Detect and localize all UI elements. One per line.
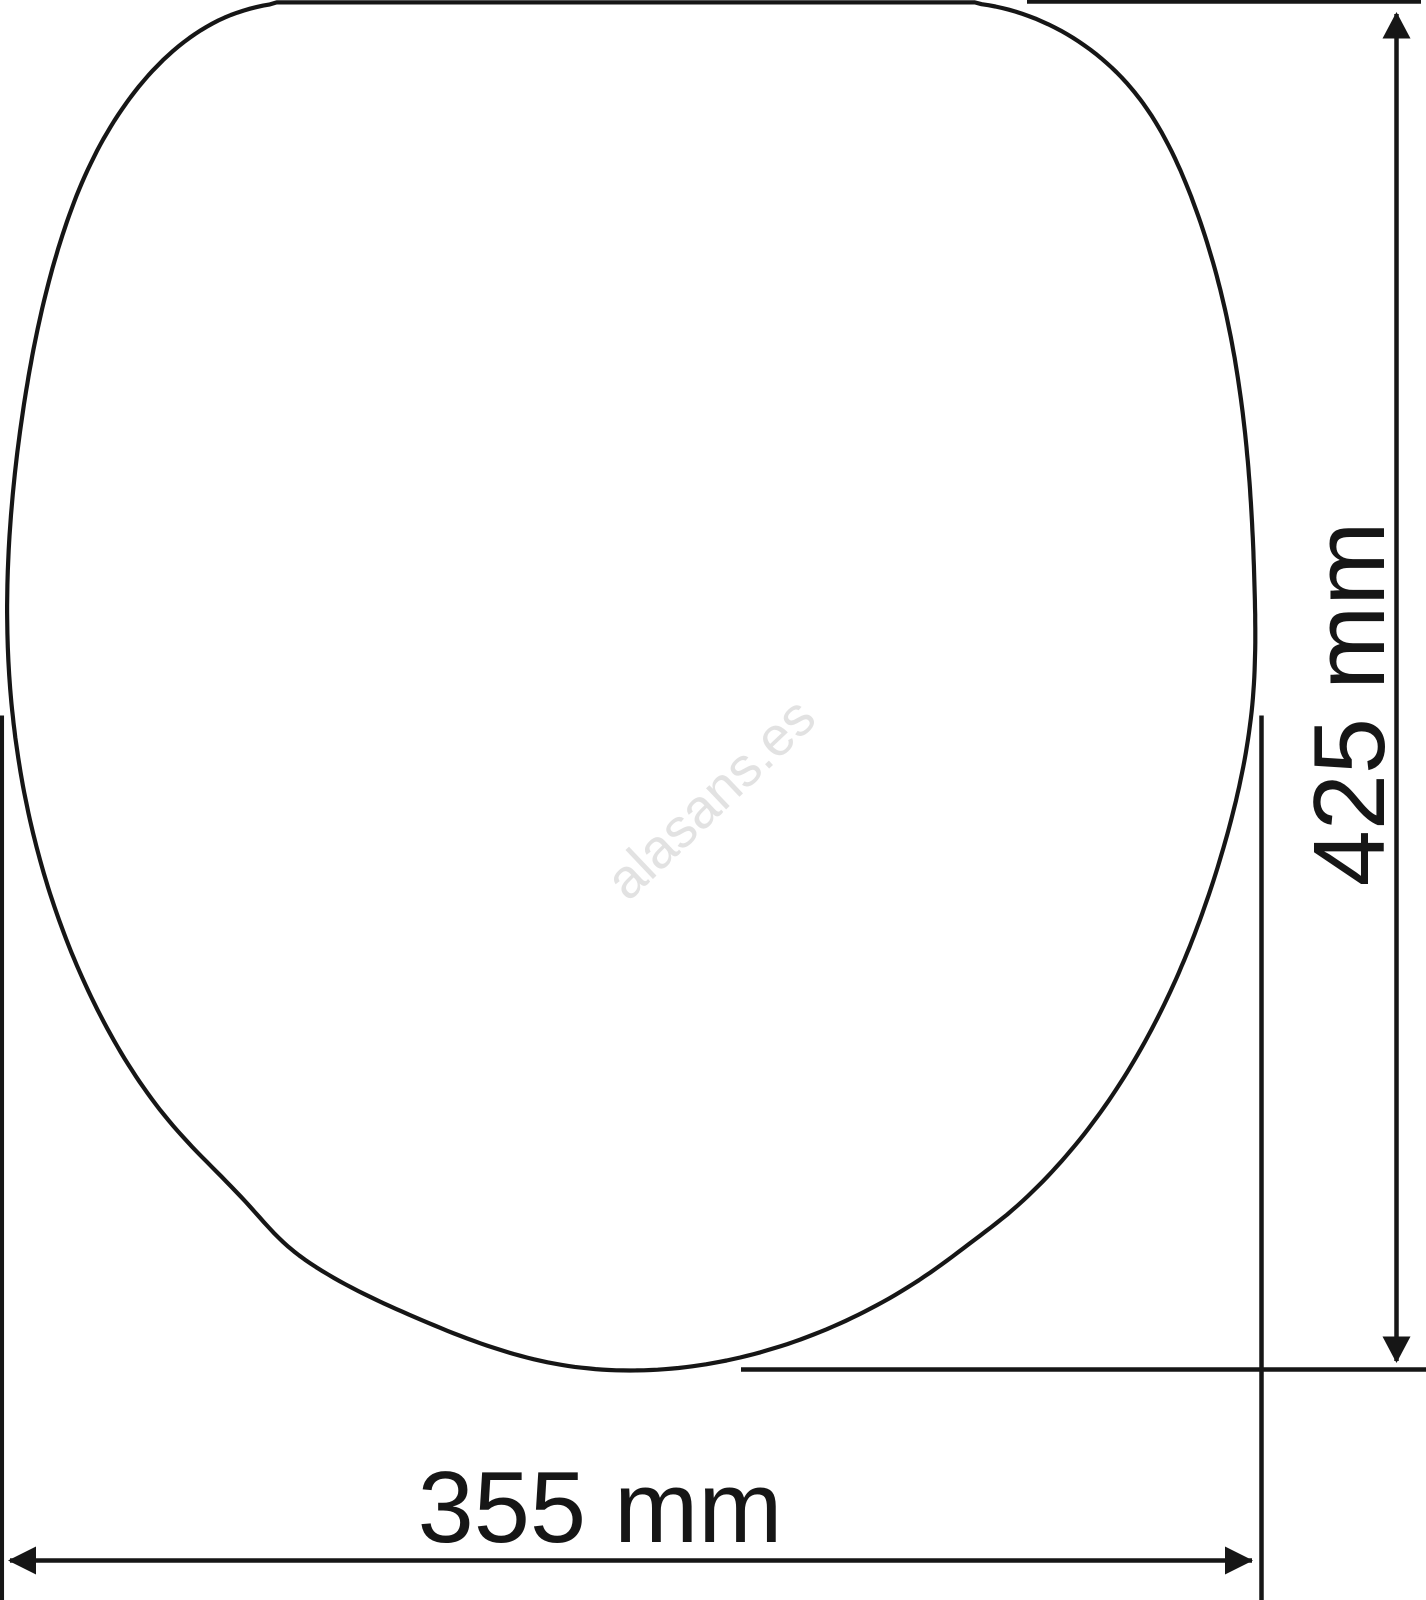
svg-text:425 mm: 425 mm: [1294, 522, 1406, 887]
svg-text:alasans.es: alasans.es: [594, 685, 827, 911]
svg-text:355 mm: 355 mm: [418, 1452, 783, 1564]
